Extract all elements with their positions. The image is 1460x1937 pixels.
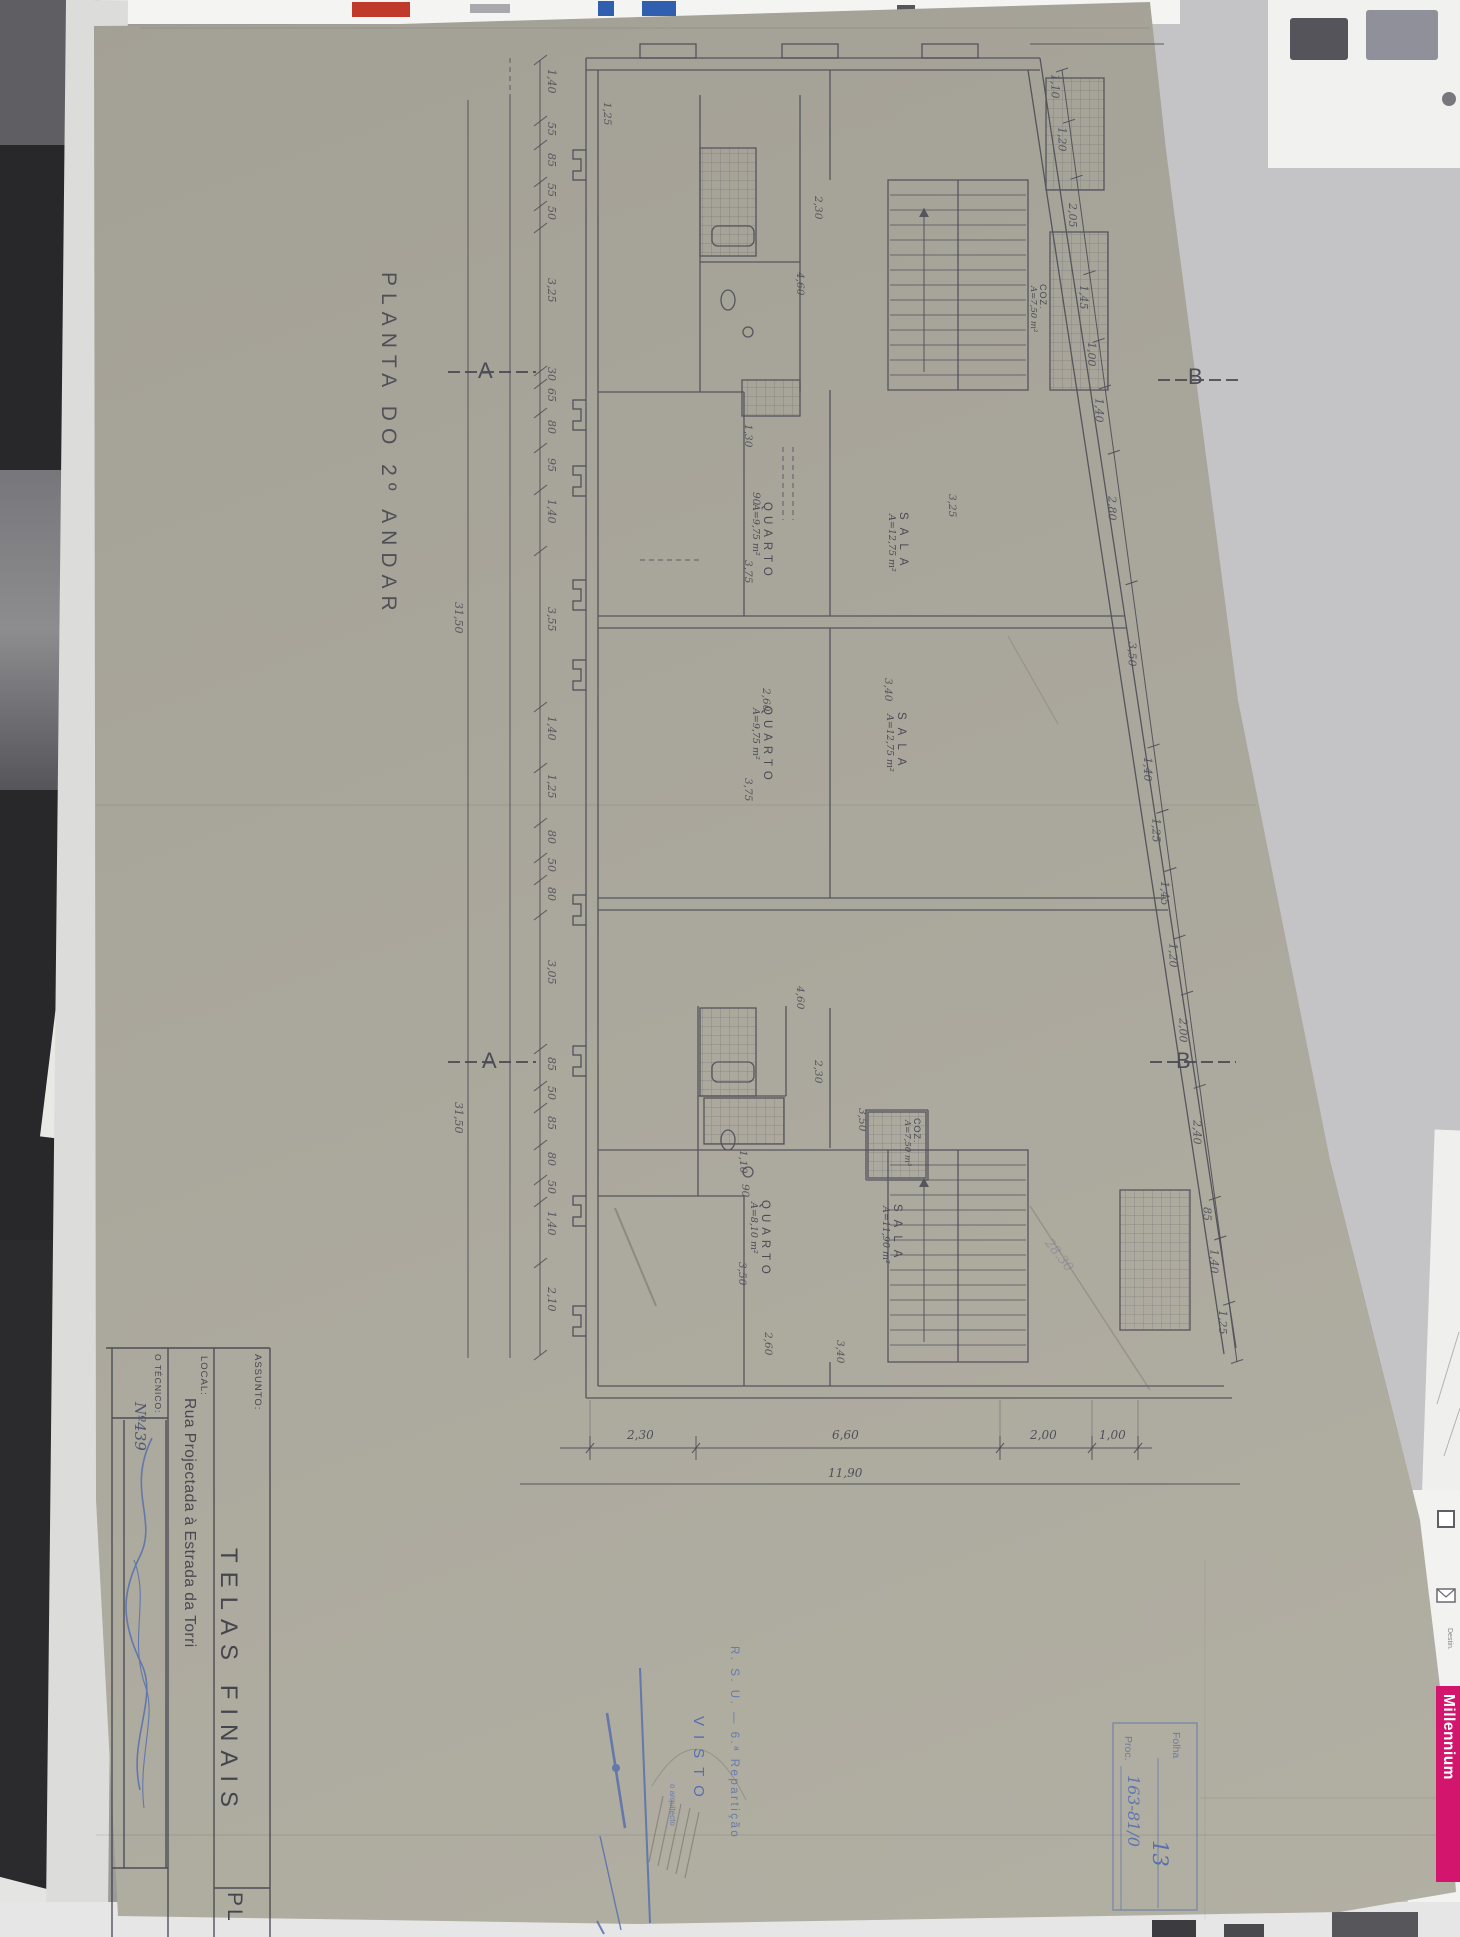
room-name: SALA [891, 1204, 903, 1265]
room-label-quarto-1: QUARTO A=9,75 m² [750, 502, 773, 581]
window-notch [922, 44, 978, 58]
stamp-proc-value: 163-81/0 [1124, 1775, 1143, 1847]
window-notch [573, 1196, 586, 1226]
side-sheet-label: Destin. [1446, 1628, 1453, 1650]
stamp-arquitecto: o arquitecto [668, 1784, 677, 1826]
stamp-visto: VISTO [690, 1716, 707, 1806]
room-area: A=11,90 m² [880, 1206, 891, 1265]
room-area: A=9,75 m² [750, 504, 761, 581]
window-notch [573, 660, 586, 690]
titleblock-tecnico-number: Nº439 [131, 1402, 149, 1451]
window-notch [573, 895, 586, 925]
room-name: QUARTO [761, 706, 773, 785]
envelope-icon [1436, 1588, 1456, 1604]
room-label-quarto-3: QUARTO A=8,10 m² [748, 1200, 771, 1279]
titleblock-tecnico-label: O TÉCNICO: [153, 1354, 163, 1413]
photo-of-blueprint: PLANTA DO 2º ANDAR A A B B QUARTO A=9,75… [0, 0, 1460, 1937]
window-notch [573, 466, 586, 496]
section-marker-a: A [482, 1048, 497, 1074]
window-notch [782, 44, 838, 58]
window-notch [573, 580, 586, 610]
titleblock-assunto-value: TELAS FINAIS [214, 1548, 242, 1816]
millennium-logo: Millennium [1439, 1694, 1457, 1780]
room-area: A=12,75 m² [886, 514, 897, 573]
titleblock-sheet-code: PL [222, 1892, 246, 1924]
room-area: A=8,10 m² [748, 1202, 759, 1279]
titleblock-local-value: Rua Projectada à Estrada da Torri [180, 1398, 198, 1648]
room-area: A=7,50 m² [1028, 286, 1038, 332]
window-notch [573, 400, 586, 430]
section-marker-b: B [1188, 364, 1203, 390]
drawing-title: PLANTA DO 2º ANDAR [376, 272, 400, 618]
room-label-quarto-2: QUARTO A=9,75 m² [750, 706, 773, 785]
millennium-banner: Millennium [1436, 1686, 1460, 1882]
window-notch [573, 1306, 586, 1336]
stamp-proc-label: Proc. [1122, 1736, 1134, 1761]
window-notch [573, 1046, 586, 1076]
room-name: SALA [897, 512, 909, 573]
checkbox-icon [1437, 1510, 1455, 1528]
room-area: A=7,50 m² [902, 1120, 912, 1166]
stamp-rsu-line: R. S. U. — 6.ª Repartição [728, 1646, 740, 1839]
titleblock-local-label: LOCAL: [198, 1356, 209, 1396]
room-name: QUARTO [759, 1200, 771, 1279]
room-label-sala-2: SALA A=12,75 m² [884, 712, 907, 773]
room-label-coz-2: COZ. A=7,50 m² [1028, 284, 1048, 332]
window-notch [640, 44, 696, 58]
window-notch [573, 150, 586, 180]
room-label-sala-1: SALA A=12,75 m² [886, 512, 909, 573]
section-marker-b: B [1176, 1048, 1191, 1074]
room-label-sala-3: SALA A=11,90 m² [880, 1204, 903, 1265]
room-area: A=12,75 m² [884, 714, 895, 773]
room-name: COZ. [912, 1118, 922, 1166]
room-label-coz-1: COZ. A=7,50 m² [902, 1118, 922, 1166]
room-name: COZ. [1038, 284, 1048, 332]
room-area: A=9,75 m² [750, 708, 761, 785]
room-name: QUARTO [761, 502, 773, 581]
stamp-folha-value: 13 [1148, 1840, 1172, 1867]
room-name: SALA [895, 712, 907, 773]
stamp-folha-label: Folha [1170, 1732, 1182, 1758]
section-marker-a: A [478, 358, 493, 384]
titleblock-assunto-label: ASSUNTO: [252, 1354, 263, 1410]
